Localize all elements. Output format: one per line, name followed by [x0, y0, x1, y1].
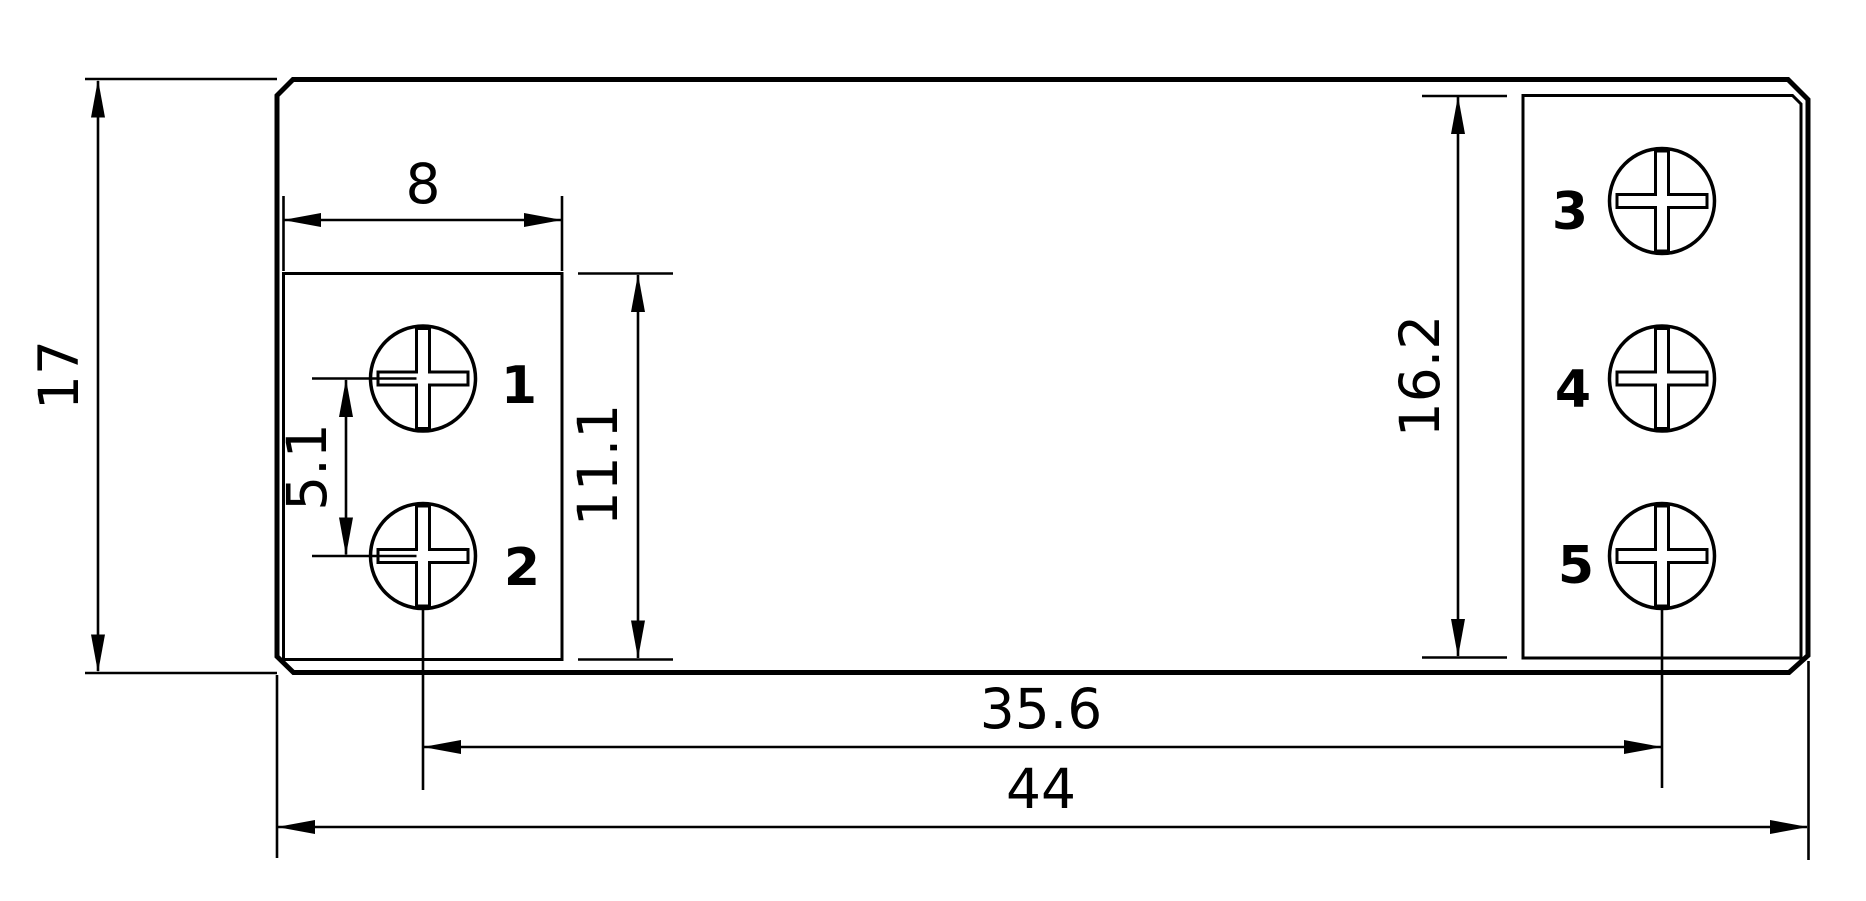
- arrowhead-left: [277, 820, 315, 834]
- arrowhead-down: [339, 518, 353, 556]
- arrowhead-right: [1770, 820, 1808, 834]
- dimension-value: 44: [1006, 757, 1076, 821]
- screw-terminal-1: [312, 326, 476, 431]
- dimension-block-width: 8: [283, 152, 562, 271]
- arrowhead-left: [423, 740, 461, 754]
- screw-terminal-5: [1610, 504, 1715, 609]
- dimension-value: 5.1: [275, 423, 339, 510]
- arrowhead-right: [524, 213, 562, 227]
- arrowhead-down: [631, 621, 645, 659]
- arrowhead-up: [339, 379, 353, 417]
- terminal-label-1: 1: [501, 356, 537, 416]
- dimension-value: 8: [406, 152, 441, 216]
- arrowhead-up: [91, 80, 105, 118]
- dimension-overall-height: 17: [27, 79, 277, 673]
- dimension-value: 35.6: [980, 677, 1102, 741]
- dimension-left-block-height: 11.1: [566, 274, 673, 660]
- screw-terminal-2: [312, 504, 476, 609]
- dimension-value: 17: [27, 340, 91, 410]
- arrowhead-up: [1451, 96, 1465, 134]
- arrowhead-down: [1451, 619, 1465, 657]
- dimension-value: 16.2: [1388, 315, 1452, 437]
- arrowhead-left: [283, 213, 321, 227]
- terminal-label-4: 4: [1555, 360, 1591, 420]
- terminal-label-2: 2: [504, 538, 540, 598]
- technical-drawing: 17 8 5.1 11.1 16.2: [0, 0, 1866, 901]
- arrowhead-down: [91, 635, 105, 673]
- screw-terminal-3: [1610, 149, 1715, 254]
- dimension-value: 11.1: [566, 404, 630, 526]
- dimension-right-block-height: 16.2: [1388, 96, 1507, 658]
- terminal-label-3: 3: [1552, 182, 1588, 242]
- screw-terminal-4: [1610, 326, 1715, 431]
- arrowhead-up: [631, 274, 645, 312]
- arrowhead-right: [1624, 740, 1662, 754]
- terminal-label-5: 5: [1558, 536, 1594, 596]
- dimension-screw-spacing: 5.1: [275, 379, 353, 556]
